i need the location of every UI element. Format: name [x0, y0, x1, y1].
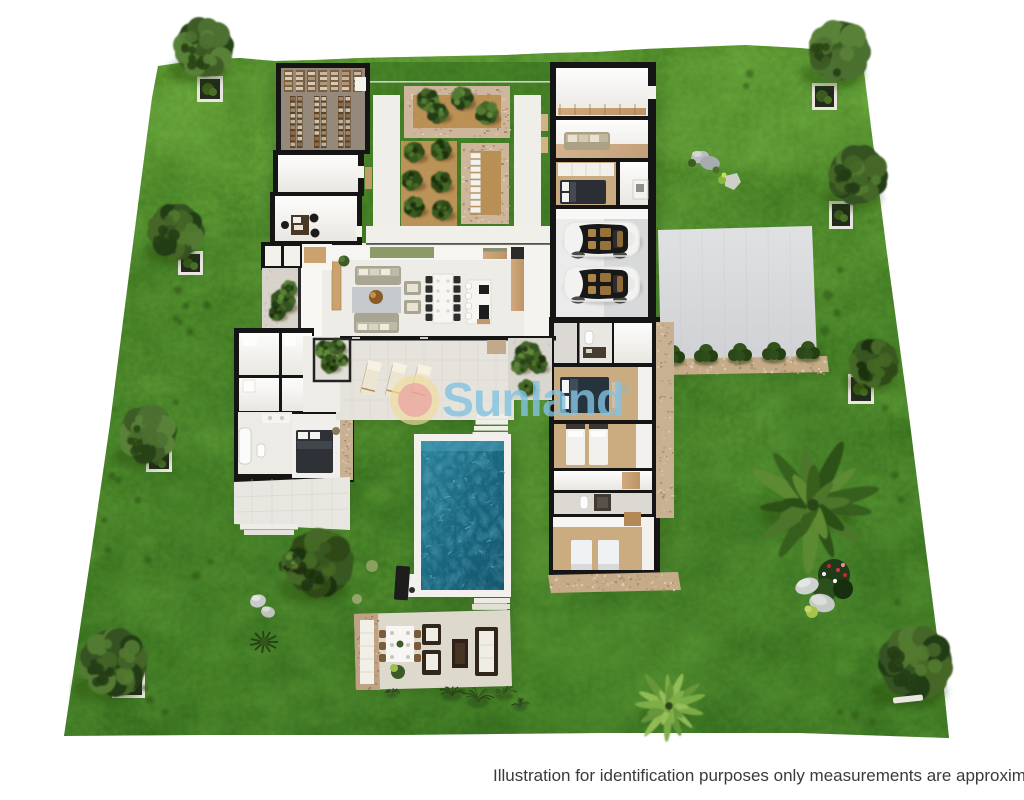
svg-text:®: ®: [620, 382, 630, 397]
svg-text:Sunland: Sunland: [442, 374, 624, 427]
